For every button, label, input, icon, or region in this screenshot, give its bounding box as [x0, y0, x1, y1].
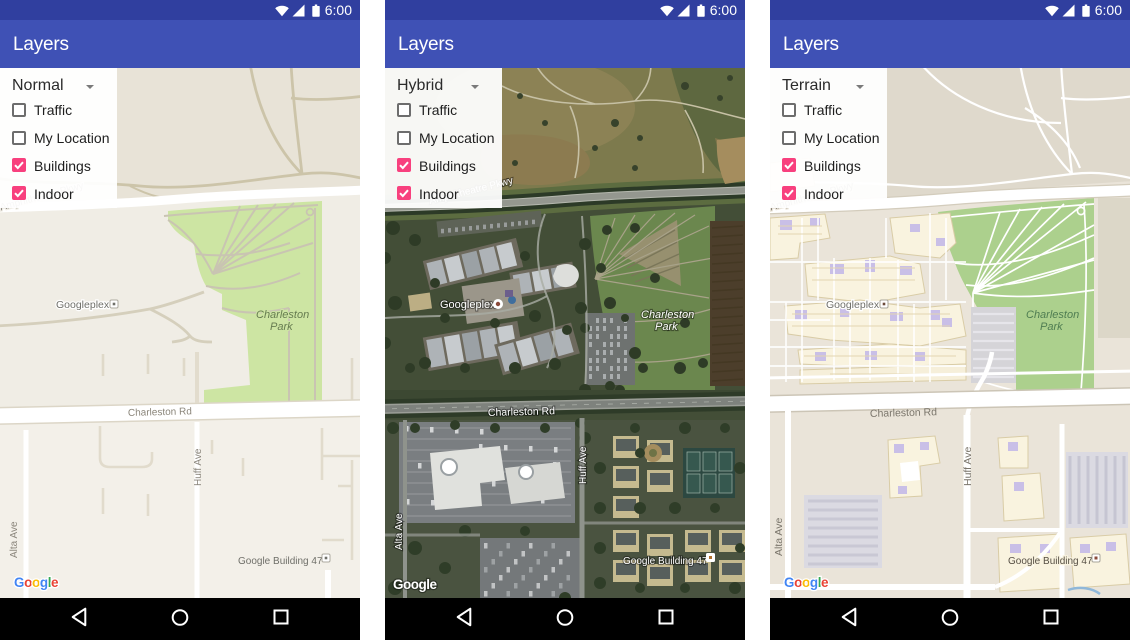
svg-text:Google Building 47: Google Building 47	[1008, 556, 1093, 567]
svg-text:Huff Ave: Huff Ave	[962, 447, 974, 486]
svg-text:Googleplex: Googleplex	[826, 299, 880, 311]
svg-text:Charleston: Charleston	[641, 309, 694, 321]
svg-text:Googleplex: Googleplex	[440, 299, 496, 311]
svg-text:Google Building 47: Google Building 47	[238, 556, 323, 567]
svg-text:Google: Google	[784, 575, 829, 590]
svg-text:Huff Ave: Huff Ave	[578, 446, 589, 484]
svg-text:Charleston Rd: Charleston Rd	[488, 405, 556, 419]
svg-text:Charleston: Charleston	[256, 309, 309, 321]
svg-text:Alta Ave: Alta Ave	[773, 518, 785, 556]
svg-text:Alta Ave: Alta Ave	[394, 513, 405, 550]
svg-text:Alta Ave: Alta Ave	[9, 521, 20, 558]
svg-text:Google: Google	[393, 577, 437, 592]
svg-text:Park: Park	[270, 321, 293, 333]
svg-text:Google: Google	[14, 575, 59, 590]
svg-text:Huff Ave: Huff Ave	[193, 448, 204, 486]
svg-text:Charleston: Charleston	[1026, 309, 1079, 321]
svg-text:Charleston Rd: Charleston Rd	[128, 406, 192, 419]
svg-text:Charleston Rd: Charleston Rd	[870, 406, 938, 420]
svg-text:Park: Park	[1040, 321, 1063, 333]
svg-text:Googleplex: Googleplex	[56, 299, 110, 311]
svg-text:Google Building 47: Google Building 47	[623, 556, 708, 567]
svg-text:Park: Park	[655, 321, 678, 333]
